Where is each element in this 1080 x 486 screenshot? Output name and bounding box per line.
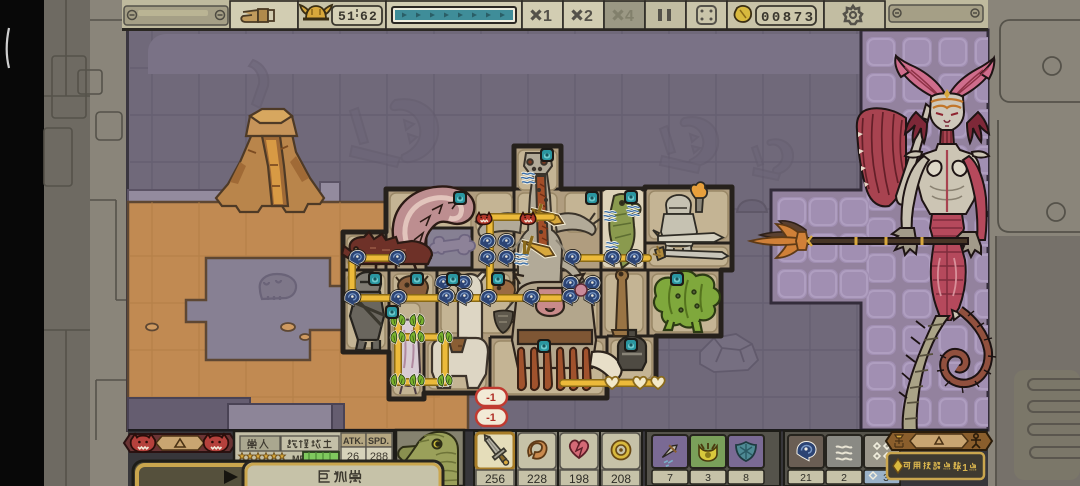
svg-text:2: 2 [841, 472, 847, 484]
svg-text:SPD.: SPD. [368, 436, 389, 446]
svg-text:3: 3 [705, 472, 711, 484]
svg-text:ATK.: ATK. [343, 436, 363, 446]
svg-text:7: 7 [667, 472, 673, 484]
svg-text:21: 21 [800, 472, 812, 484]
svg-text:256: 256 [485, 472, 505, 486]
svg-text:8: 8 [743, 472, 749, 484]
svg-text:228: 228 [527, 472, 547, 486]
svg-text:208: 208 [611, 472, 631, 486]
svg-text:: 1: : 1 [956, 463, 968, 474]
svg-text:198: 198 [569, 472, 589, 486]
